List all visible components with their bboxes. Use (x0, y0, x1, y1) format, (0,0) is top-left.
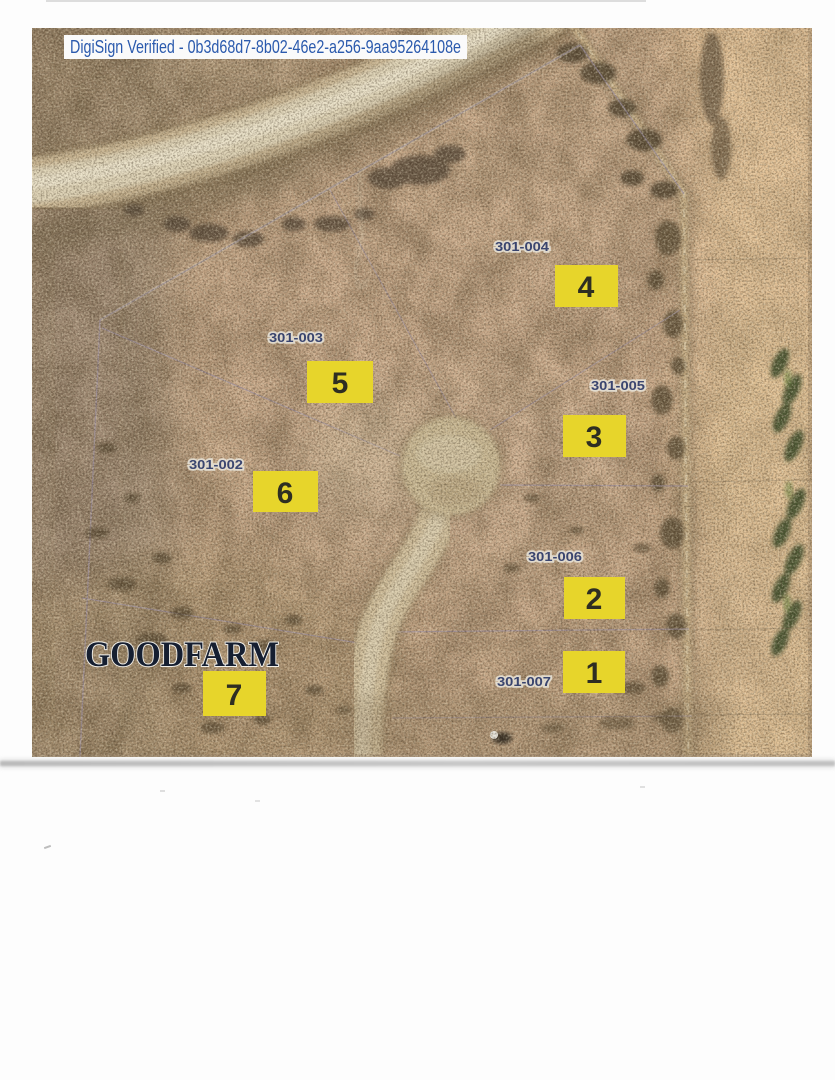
svg-text:6: 6 (277, 477, 294, 510)
svg-text:4: 4 (578, 271, 595, 304)
svg-text:301-004: 301-004 (495, 239, 550, 254)
svg-text:301-005: 301-005 (591, 378, 645, 393)
svg-text:5: 5 (332, 367, 349, 400)
svg-text:1: 1 (586, 657, 603, 690)
svg-text:301-007: 301-007 (497, 674, 551, 689)
svg-text:301-003: 301-003 (269, 330, 323, 345)
svg-text:DigiSign Verified - 0b3d68d7-8: DigiSign Verified - 0b3d68d7-8b02-46e2-a… (70, 37, 461, 57)
svg-text:7: 7 (226, 679, 243, 712)
svg-text:301-002: 301-002 (189, 457, 243, 472)
svg-text:GOODFARM: GOODFARM (85, 634, 279, 674)
svg-text:2: 2 (586, 583, 603, 616)
svg-text:3: 3 (586, 421, 603, 454)
svg-text:301-006: 301-006 (528, 549, 582, 564)
